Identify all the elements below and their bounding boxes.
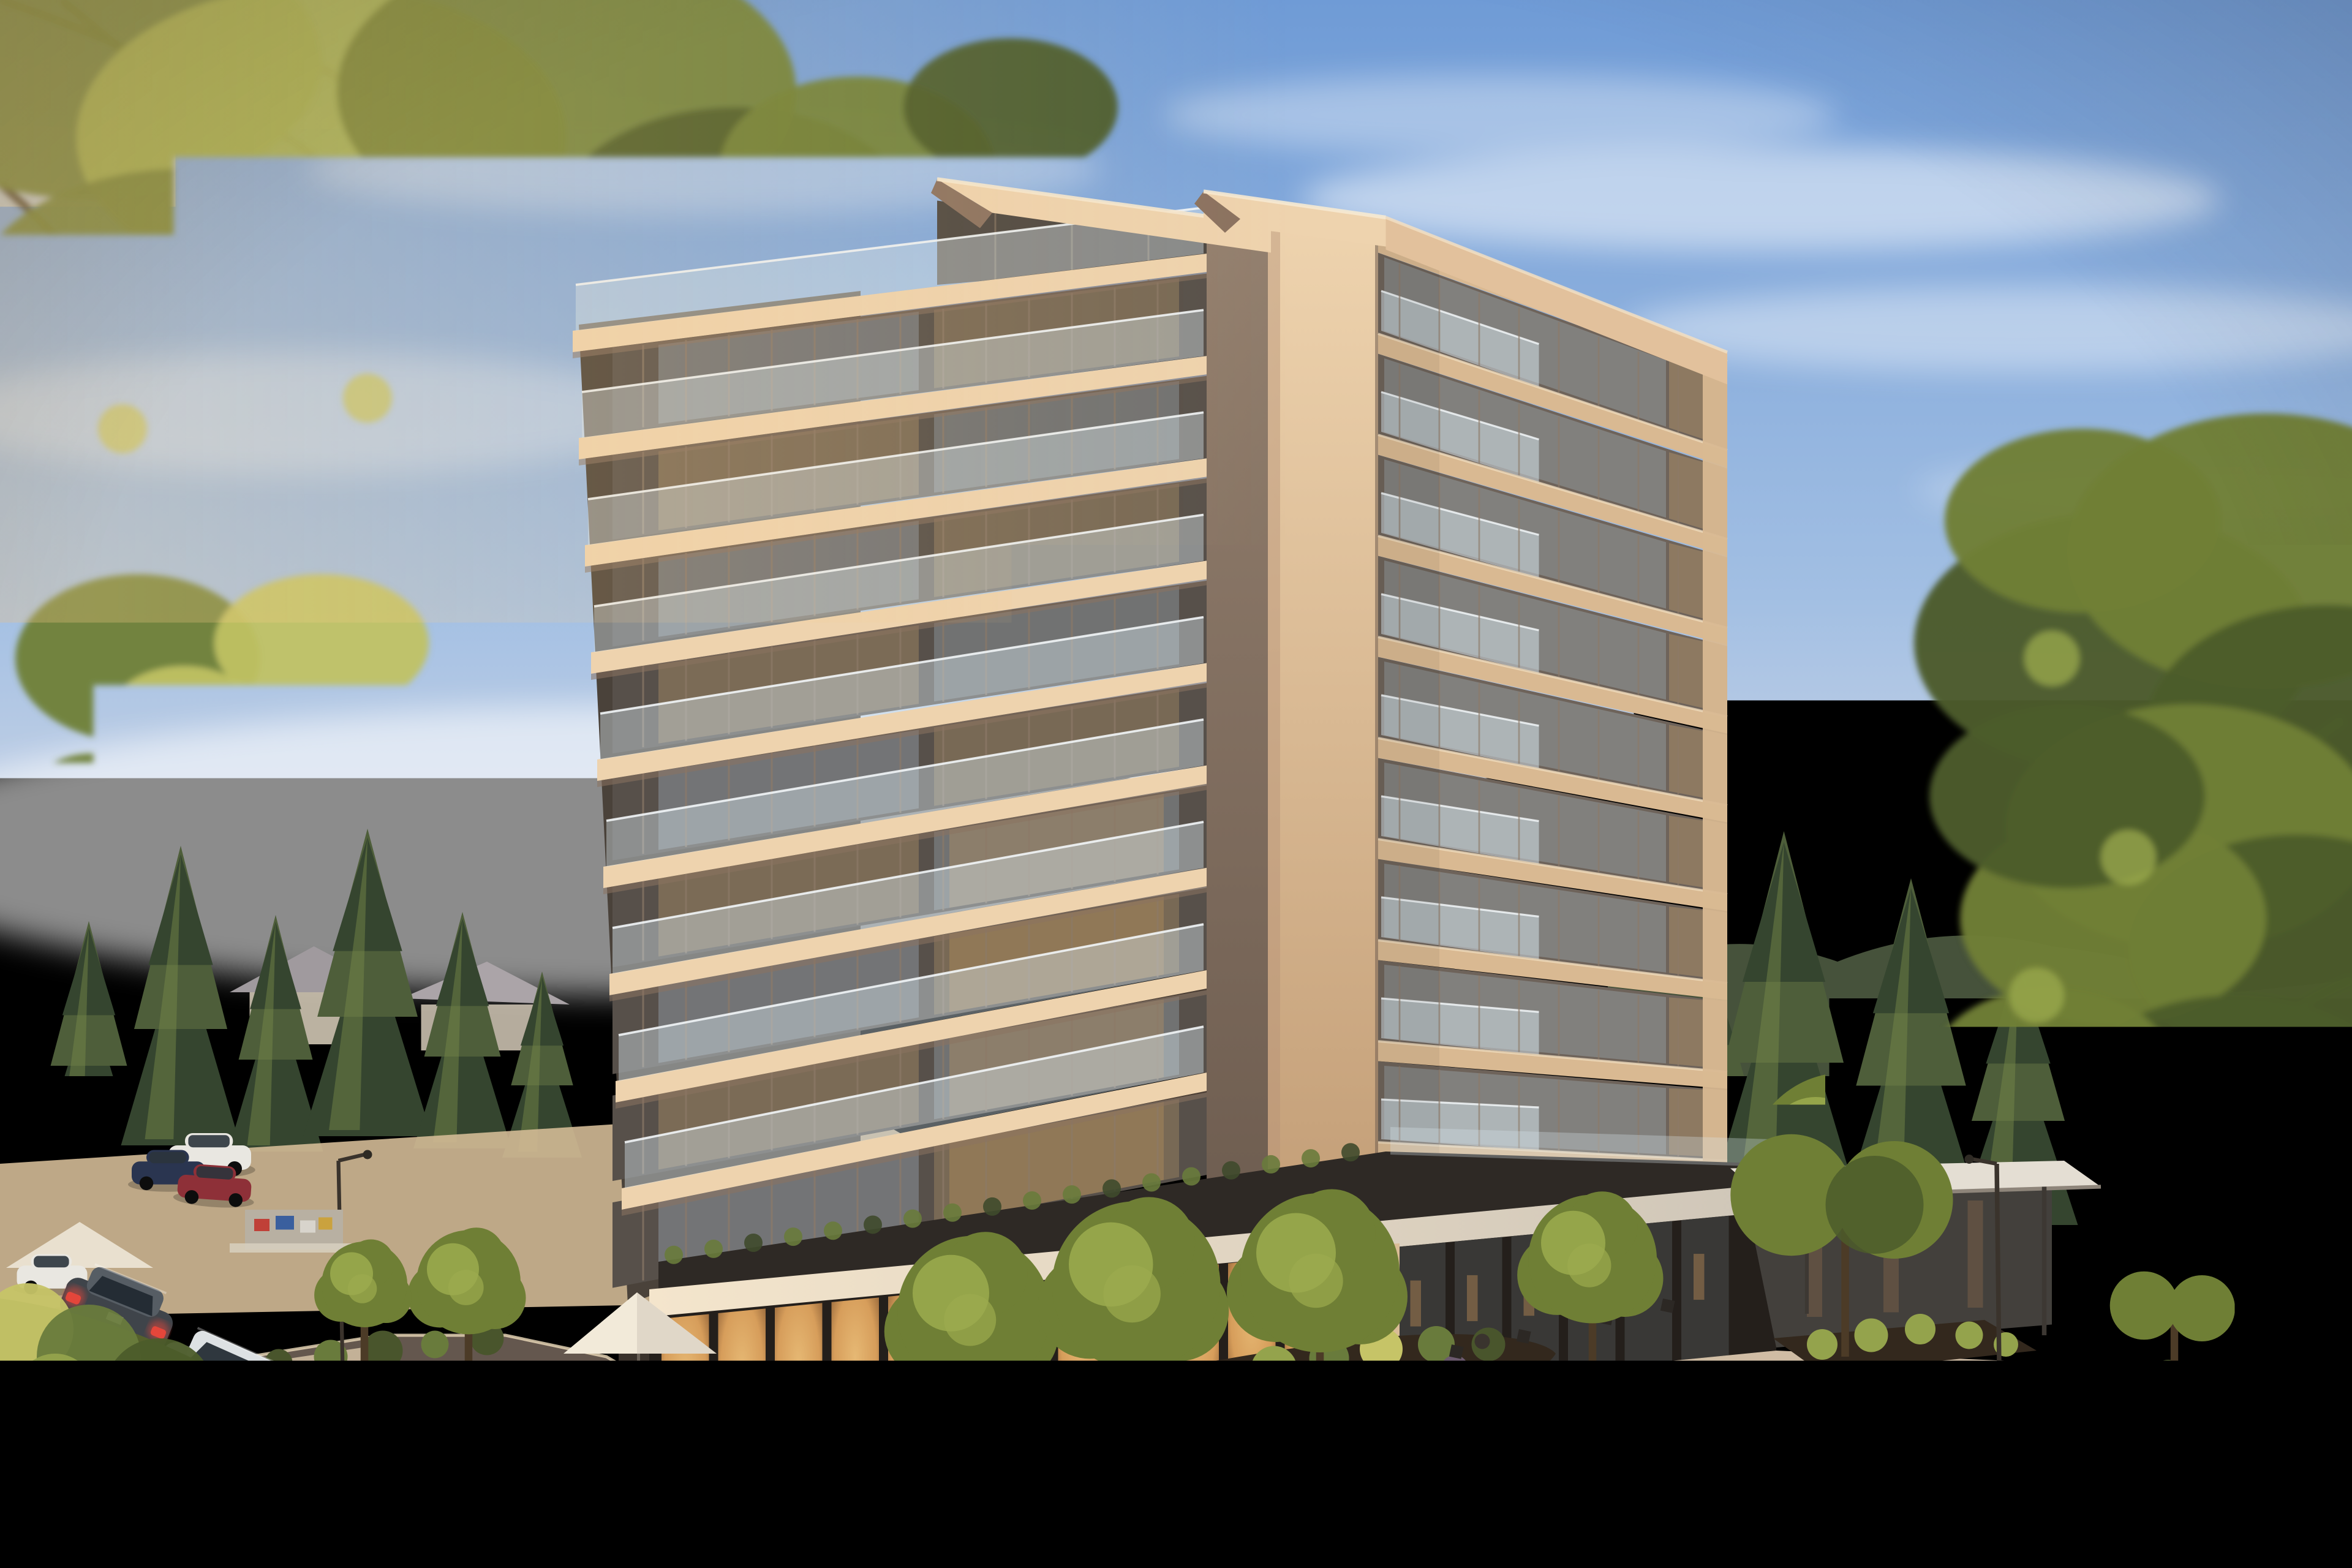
photo-scene: Modern mid-rise condominium at golden ho… — [0, 0, 2352, 1568]
vignette — [0, 0, 2352, 1568]
